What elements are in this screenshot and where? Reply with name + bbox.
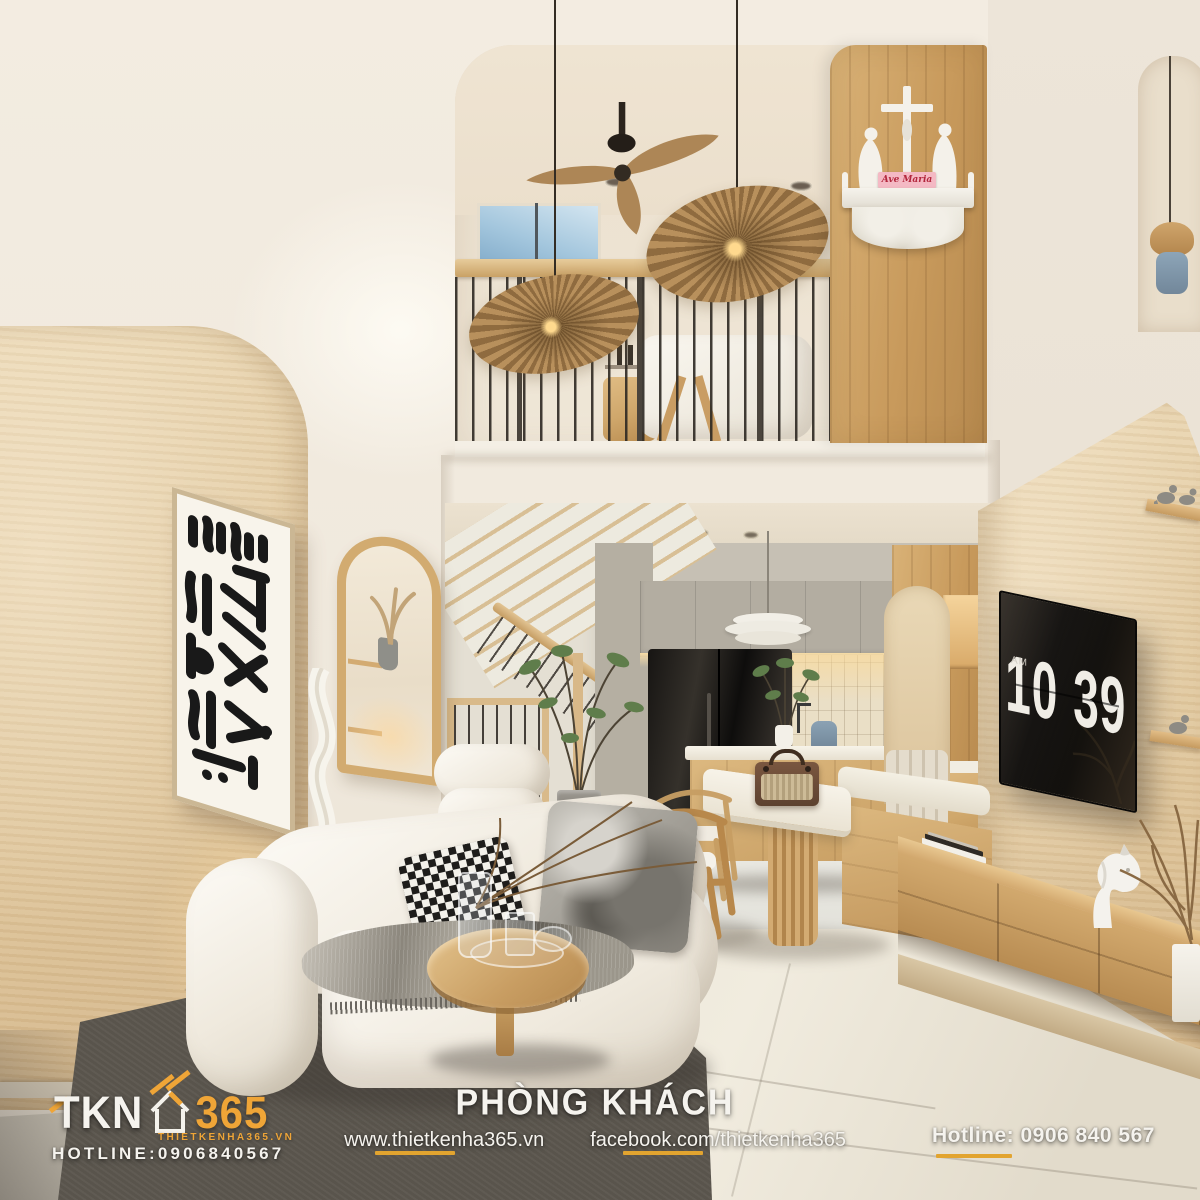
radio-knob-icon [763,766,769,772]
niche-rattan-shade [1150,222,1194,256]
vintage-radio [755,762,819,806]
glass-cup [505,912,535,956]
altar-corbel [852,207,964,249]
logo-site-text[interactable]: THIETKENHA365.VN [158,1132,294,1143]
underline-hotline [936,1154,1012,1158]
abstract-art-frame [172,487,295,837]
pendant-cord [554,0,556,292]
dried-branches-icon [1100,790,1200,960]
kitchen-pendant-cord [767,531,769,617]
coffee-table-shadow [430,1044,610,1076]
arched-wood-mirror [337,530,441,787]
glass-bowl [534,926,572,952]
mezzanine-downlight [790,181,812,191]
pendant-bulb-glow [722,236,748,262]
logo-hotline-text[interactable]: HOTLINE:0906840567 [52,1144,284,1164]
dried-twigs-icon [462,790,702,910]
room-title: PHÒNG KHÁCH [300,1083,890,1124]
refrigerator-handle [707,693,711,753]
abstract-art-strokes [177,494,280,817]
bird-figurine-icon [1164,710,1194,736]
radio-grille [761,774,813,800]
altar-shelf [842,188,974,208]
altar-plaque: Ave Maria [878,172,936,188]
mirror-warm-glow [346,690,436,783]
counter-white-vase [775,725,793,749]
glass-vase [458,872,492,958]
house-icon [147,1088,193,1134]
living-room-render: Ave Maria [0,0,1200,1200]
mirror-shelf [348,659,382,669]
radio-knob-icon [805,766,811,772]
footer-center: PHÒNG KHÁCH www.thietkenha365.vn faceboo… [300,1084,890,1152]
sofa-arm-cylinder [186,858,318,1096]
logo-text-main: TKN [54,1090,143,1135]
pleated-pendant-lamp [735,631,801,645]
pampas-grass-icon [362,579,422,649]
coffee-table-leg [496,1004,514,1056]
railing-post [757,277,762,443]
mezzanine-slab-shadow [445,455,990,461]
underline-website [375,1151,455,1155]
footer-hotline[interactable]: Hotline: 0906 840 567 [932,1124,1155,1148]
niche-pendant-cord [1169,56,1171,224]
niche-blue-vase [1156,252,1188,294]
underline-facebook [623,1151,703,1155]
wall-tv: 10 39 AM [999,590,1137,813]
bird-figurine-icon [1154,478,1198,508]
pendant-bulb-glow [540,316,562,338]
website-link[interactable]: www.thietkenha365.vn [344,1129,544,1152]
facebook-link[interactable]: facebook.com/thietkenha365 [590,1129,846,1152]
pendant-cord [736,0,738,205]
altar-plaque-text: Ave Maria [882,175,933,185]
logo-text-number: 365 [195,1090,268,1135]
dining-table-leg-fluted [768,820,818,946]
railing-post [637,277,642,443]
kitchen-spotlight [743,531,759,539]
white-planter [1172,944,1200,1022]
